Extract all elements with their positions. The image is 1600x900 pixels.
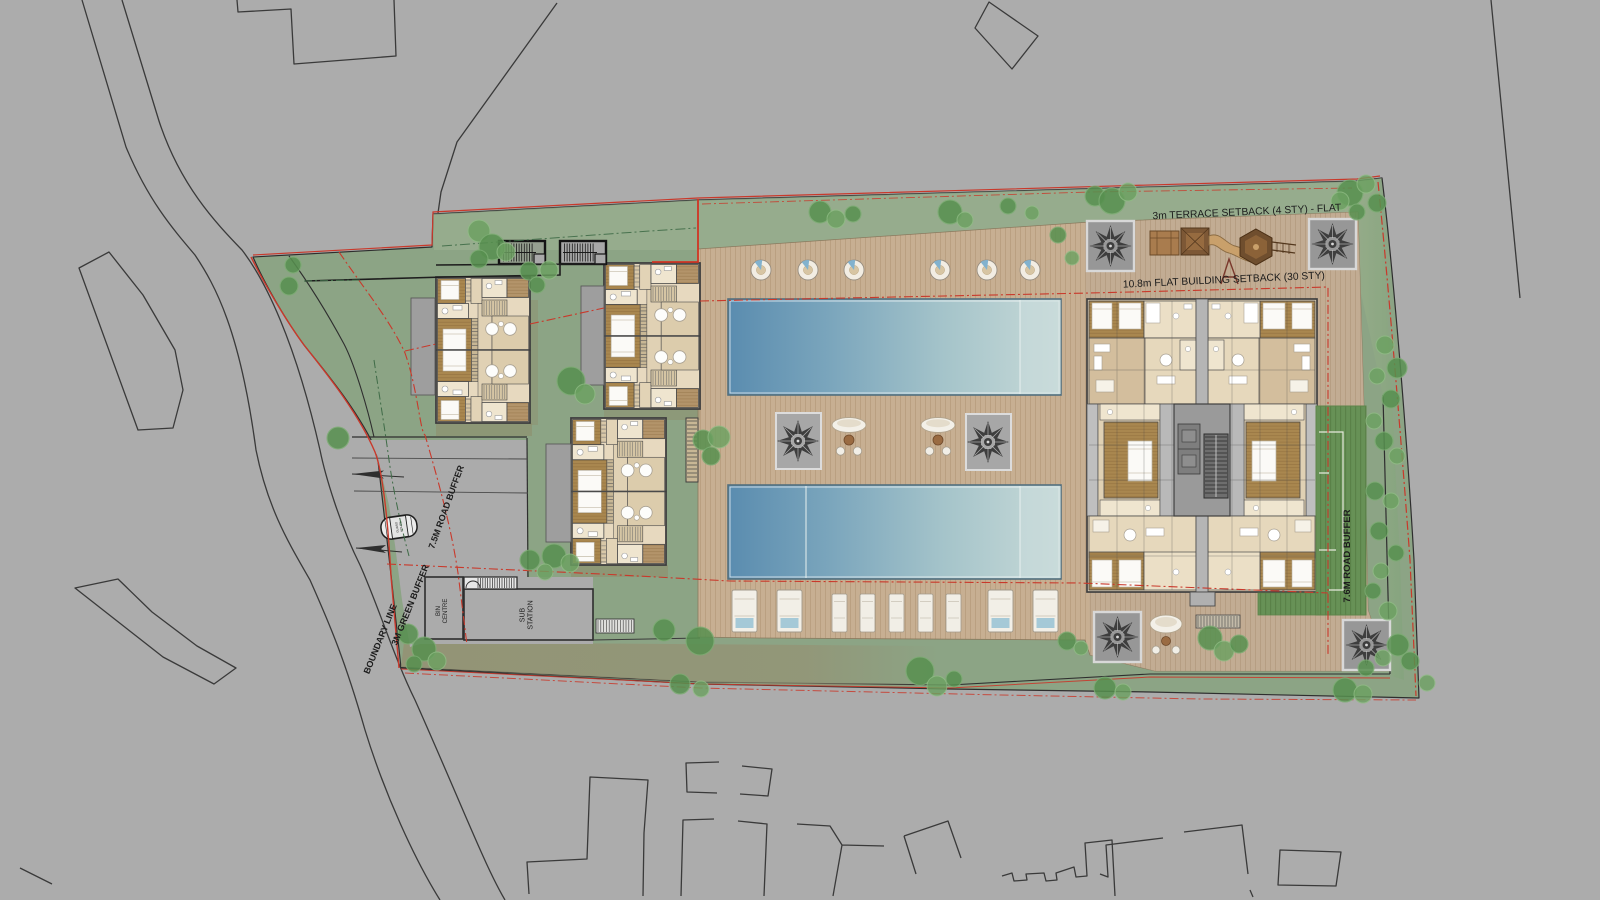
svg-text:GUARDHOUSE: GUARDHOUSE [394,520,404,533]
svg-text:7.6M ROAD BUFFER: 7.6M ROAD BUFFER [1342,509,1353,602]
